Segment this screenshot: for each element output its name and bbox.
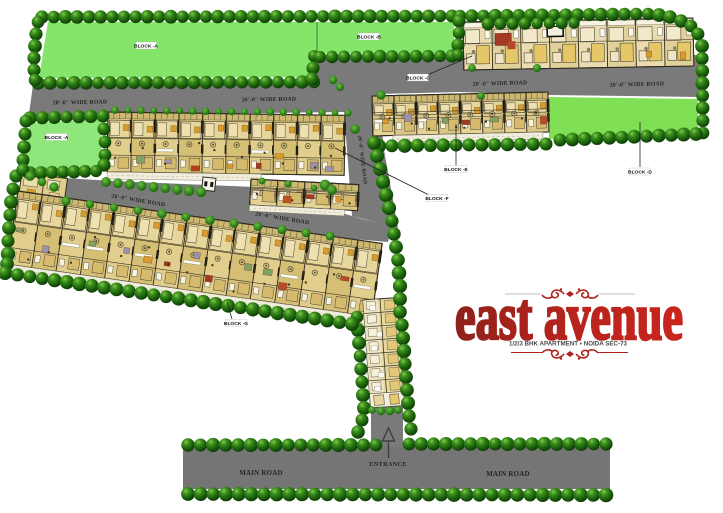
- svg-text:ENTRANCE: ENTRANCE: [369, 461, 406, 468]
- svg-text:BLOCK -A: BLOCK -A: [134, 43, 158, 49]
- svg-text:BLOCK -F: BLOCK -F: [425, 196, 448, 202]
- svg-text:20'-0" WIDE ROAD: 20'-0" WIDE ROAD: [242, 97, 297, 104]
- svg-text:BLOCK -E: BLOCK -E: [444, 167, 468, 173]
- svg-text:MAIN ROAD: MAIN ROAD: [239, 469, 283, 477]
- svg-text:BLOCK -B: BLOCK -B: [357, 34, 381, 40]
- svg-text:BLOCK -A: BLOCK -A: [45, 135, 69, 141]
- svg-text:BLOCK -C: BLOCK -C: [406, 75, 430, 81]
- svg-text:BLOCK -G: BLOCK -G: [224, 321, 248, 327]
- svg-text:1/2/3 BHK APARTMENT • NOIDA SE: 1/2/3 BHK APARTMENT • NOIDA SEC-73: [509, 341, 627, 348]
- svg-text:BLOCK -D: BLOCK -D: [628, 169, 652, 175]
- svg-text:MAIN ROAD: MAIN ROAD: [486, 470, 530, 478]
- svg-text:20'-0" WIDE ROAD: 20'-0" WIDE ROAD: [53, 100, 108, 107]
